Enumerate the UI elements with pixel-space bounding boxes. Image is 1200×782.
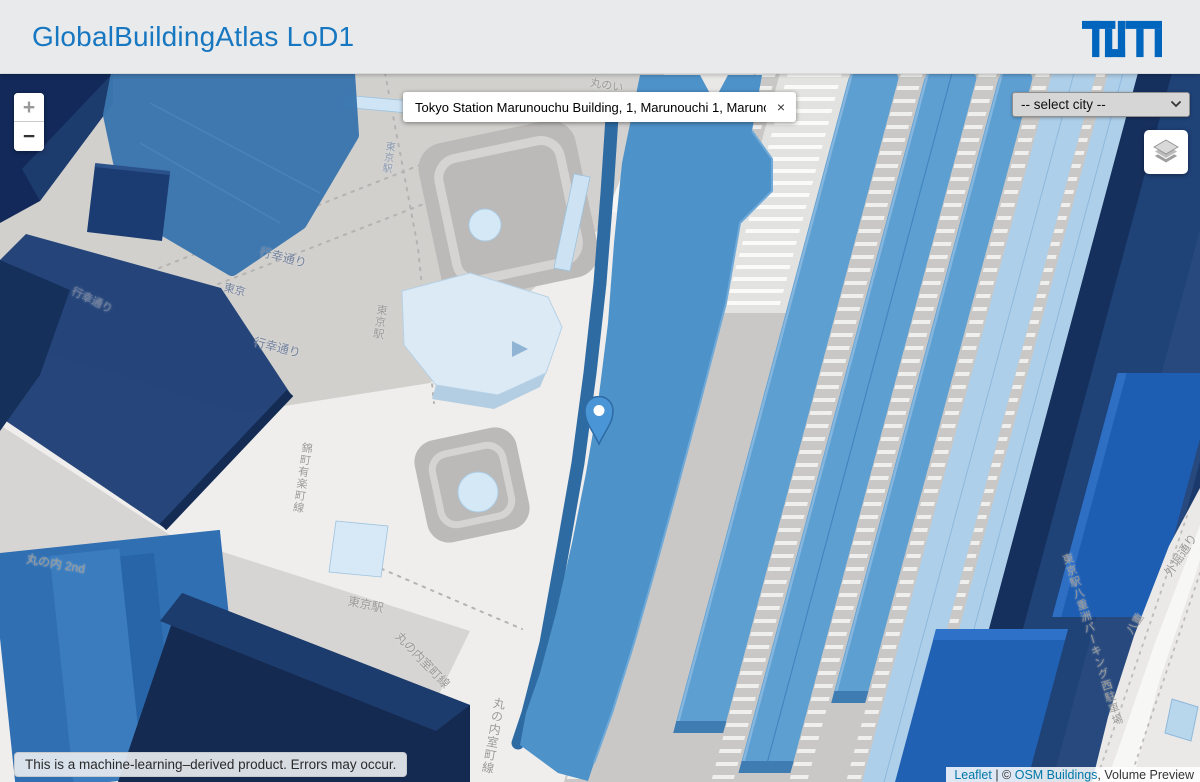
search-box: × xyxy=(403,92,796,122)
leaflet-link[interactable]: Leaflet xyxy=(954,768,992,782)
city-select[interactable]: -- select city -- xyxy=(1012,92,1190,117)
attribution-suffix: , Volume Preview xyxy=(1097,768,1194,782)
layers-icon xyxy=(1152,138,1180,166)
city-select-wrap: -- select city -- xyxy=(1012,92,1190,117)
disclaimer-banner: This is a machine-learning–derived produ… xyxy=(14,752,407,777)
attribution: Leaflet | © OSM Buildings, Volume Previe… xyxy=(946,767,1200,782)
tum-logo xyxy=(1082,19,1162,59)
search-clear-button[interactable]: × xyxy=(766,92,796,122)
map-canvas[interactable]: 行幸通り 行幸通り 行幸通り 東京 東京駅 東京駅 丸の内 2nd 丸の内室町線… xyxy=(0,73,1200,782)
layers-button[interactable] xyxy=(1144,130,1188,174)
map-marker[interactable] xyxy=(584,396,614,446)
attribution-copyright: © xyxy=(1002,768,1015,782)
attribution-divider: | xyxy=(992,768,1002,782)
search-input[interactable] xyxy=(403,100,766,115)
osm-buildings-link[interactable]: OSM Buildings xyxy=(1015,768,1098,782)
header: GlobalBuildingAtlas LoD1 xyxy=(0,0,1200,74)
zoom-out-button[interactable]: − xyxy=(14,122,44,151)
zoom-in-button[interactable]: + xyxy=(14,93,44,122)
page-title: GlobalBuildingAtlas LoD1 xyxy=(32,0,354,73)
page: { "header": { "title": "GlobalBuildingAt… xyxy=(0,0,1200,782)
zoom-control: + − xyxy=(14,93,44,151)
